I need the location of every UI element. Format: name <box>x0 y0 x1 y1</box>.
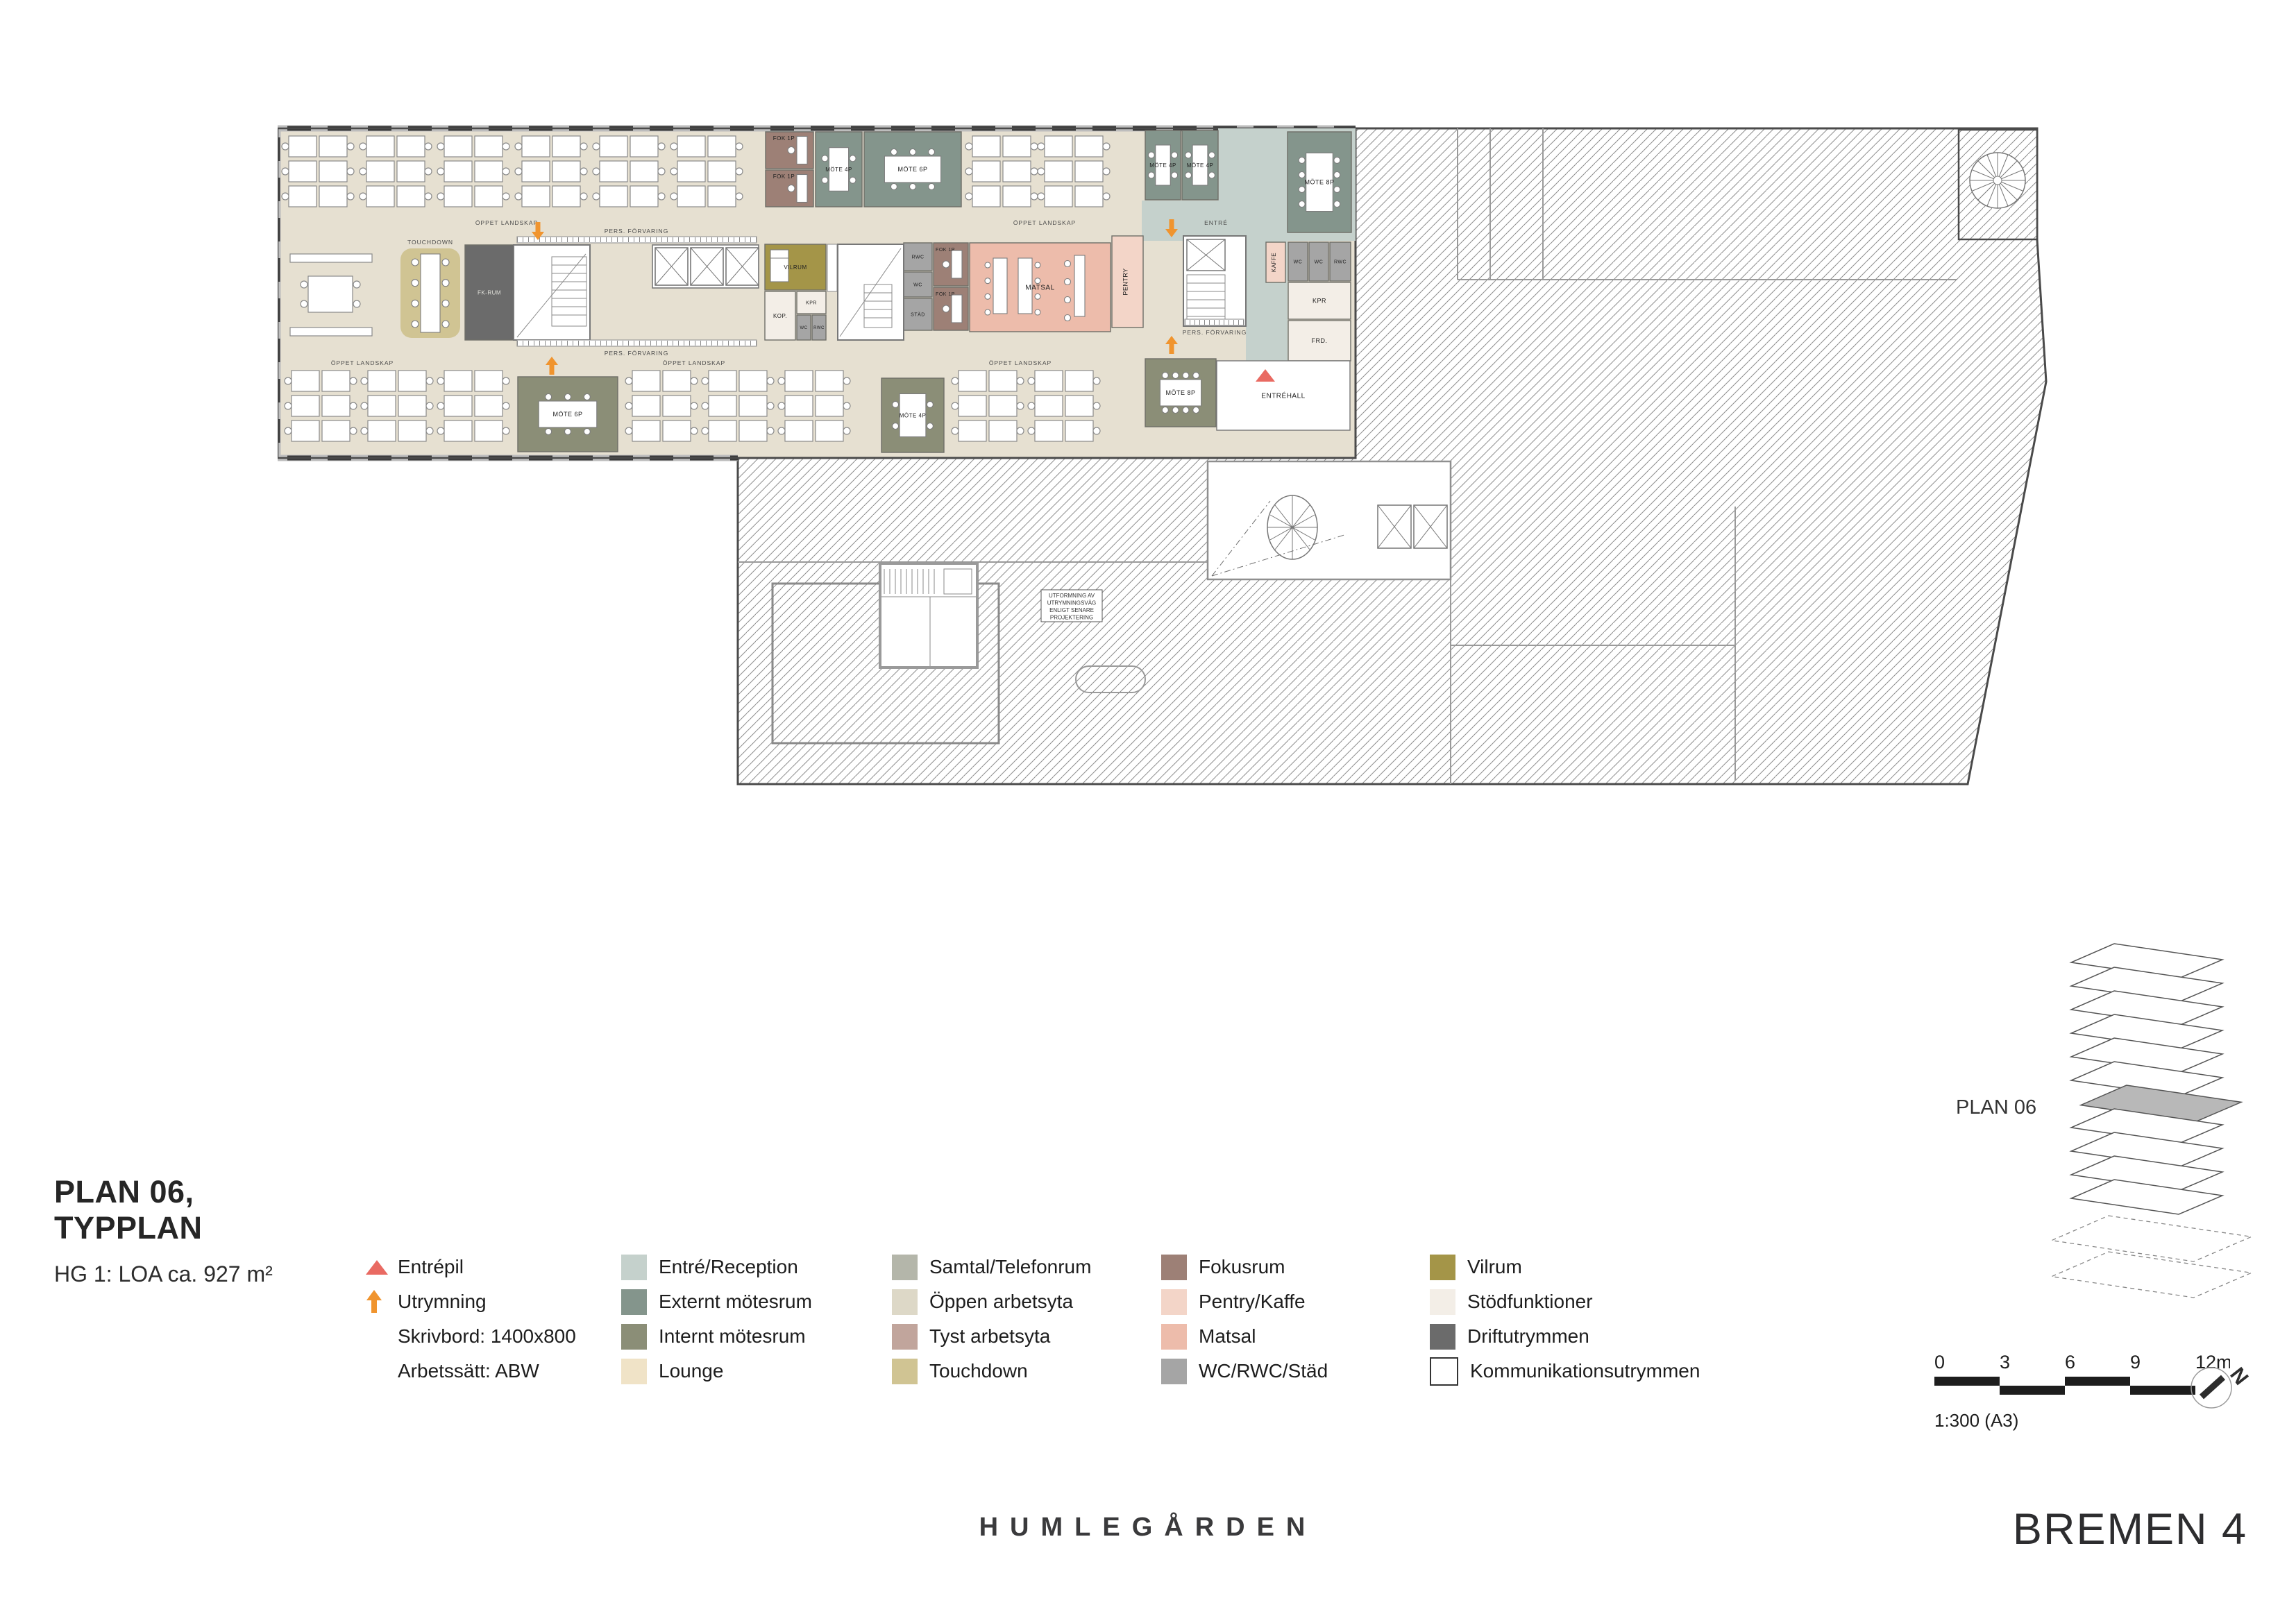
room-rwc: RWC <box>1330 242 1351 281</box>
legend-swatch-internt_motesrum <box>621 1324 647 1350</box>
svg-text:FOK 1P: FOK 1P <box>773 173 795 180</box>
room-matsal: MATSAL <box>970 243 1111 332</box>
axon-floor-label: PLAN 06 <box>1956 1096 2036 1119</box>
area-label-ppet-landskap: ÖPPET LANDSKAP <box>989 359 1052 366</box>
scale-tick: 3 <box>2000 1352 2010 1373</box>
legend-item-matsal: Matsal <box>1161 1319 1328 1354</box>
legend-swatch-matsal <box>1161 1324 1187 1350</box>
room-fok-1p: FOK 1P <box>934 287 968 330</box>
legend-column-4: VilrumStödfunktionerDriftutrymmenKommuni… <box>1430 1250 1700 1388</box>
svg-text:FK-RUM: FK-RUM <box>478 289 501 296</box>
svg-text:VILRUM: VILRUM <box>784 264 807 271</box>
brand-logotype: HUMLEGÅRDEN <box>979 1513 1317 1543</box>
room-m-te-6p: MÖTE 6P <box>518 377 618 452</box>
svg-text:FOK 1P: FOK 1P <box>936 292 955 297</box>
legend-item-kommunikationsutrymmen: Kommunikationsutrymmen <box>1430 1354 1700 1388</box>
svg-text:FRD.: FRD. <box>1312 337 1328 344</box>
legend-item-ppen-arbetsyta: Öppen arbetsyta <box>892 1284 1091 1319</box>
scale-tick: 6 <box>2065 1352 2075 1373</box>
entry-triangle <box>366 1260 398 1275</box>
svg-text:MÖTE 4P: MÖTE 4P <box>1149 162 1176 169</box>
room-touchdown <box>400 248 460 338</box>
room-st-d: STÄD <box>904 298 932 330</box>
legend-label: Entrépil <box>398 1256 464 1278</box>
legend-label: Utrymning <box>398 1291 487 1313</box>
room-kpr: KPR <box>1288 282 1351 319</box>
svg-text:ENTRÉHALL: ENTRÉHALL <box>1261 391 1305 400</box>
legend-swatch-tyst_arbetsyta <box>892 1324 918 1350</box>
axon-stack-diagram <box>2039 938 2268 1327</box>
scale-segment <box>2000 1386 2065 1395</box>
legend-swatch-wc_rwc_stad <box>1161 1359 1187 1384</box>
axon-floor-plate <box>2052 1216 2252 1261</box>
legend-column-2: Samtal/TelefonrumÖppen arbetsytaTyst arb… <box>892 1250 1091 1388</box>
legend-label: Arbetssätt: ABW <box>398 1360 539 1382</box>
svg-text:RWC: RWC <box>813 326 825 330</box>
legend-label: Tyst arbetsyta <box>929 1325 1050 1348</box>
scale-text: 1:300 (A3) <box>1934 1410 2018 1431</box>
legend-item-lounge: Lounge <box>621 1354 812 1388</box>
legend-item-internt-m-tesrum: Internt mötesrum <box>621 1319 812 1354</box>
legend-item-externt-m-tesrum: Externt mötesrum <box>621 1284 812 1319</box>
legend-item-entr-pil: Entrépil <box>366 1250 576 1284</box>
svg-text:UTRYMNINGSVÄG: UTRYMNINGSVÄG <box>1047 600 1097 606</box>
area-label-entr: ENTRÉ <box>1204 219 1228 226</box>
legend-label: Driftutrymmen <box>1467 1325 1589 1348</box>
legend-item-pentry-kaffe: Pentry/Kaffe <box>1161 1284 1328 1319</box>
legend-item-touchdown: Touchdown <box>892 1354 1091 1388</box>
svg-text:ENLIGT SENARE: ENLIGT SENARE <box>1049 607 1094 613</box>
legend-label: Fokusrum <box>1199 1256 1285 1278</box>
area-label-pers-f-rvaring: PERS. FÖRVARING <box>605 228 669 235</box>
room-m-te-6p: MÖTE 6P <box>864 132 961 207</box>
room-kpr: KPR <box>797 291 826 314</box>
room-kop: KOP. <box>765 291 795 340</box>
svg-text:FOK 1P: FOK 1P <box>773 135 795 142</box>
scale-segment <box>2065 1377 2130 1386</box>
svg-text:RWC: RWC <box>911 255 924 260</box>
legend-label: Touchdown <box>929 1360 1028 1382</box>
legend-label: Lounge <box>659 1360 723 1382</box>
area-label-pers-f-rvaring: PERS. FÖRVARING <box>605 350 669 357</box>
title-block: PLAN 06, TYPPLAN HG 1: LOA ca. 927 m² <box>54 1174 273 1287</box>
room-m-te-4p: MÖTE 4P <box>881 378 944 452</box>
room-kaffe: KAFFE <box>1266 242 1285 282</box>
legend-label: Öppen arbetsyta <box>929 1291 1073 1313</box>
legend-label: Vilrum <box>1467 1256 1522 1278</box>
room-wc: WC <box>797 315 811 340</box>
legend-column-1: Entré/ReceptionExternt mötesrumInternt m… <box>621 1250 812 1388</box>
room-fk-rum: FK-RUM <box>465 245 514 340</box>
legend-swatch-lounge <box>621 1359 647 1384</box>
legend-swatch-driftutrymmen <box>1430 1324 1455 1350</box>
legend-swatch-pentry_kaffe <box>1161 1289 1187 1315</box>
room-wc: WC <box>1288 242 1308 281</box>
area-label-ppet-landskap: ÖPPET LANDSKAP <box>1013 219 1076 226</box>
legend-item-samtal-telefonrum: Samtal/Telefonrum <box>892 1250 1091 1284</box>
room-m-te-8p: MÖTE 8P <box>1288 132 1351 232</box>
room-pentry: PENTRY <box>1112 236 1143 328</box>
svg-text:MATSAL: MATSAL <box>1025 284 1054 292</box>
svg-text:MÖTE 8P: MÖTE 8P <box>1165 389 1195 396</box>
annex-spiral-stair <box>1959 130 2037 239</box>
room-wc: WC <box>1309 242 1328 281</box>
svg-text:UTFORMNING AV: UTFORMNING AV <box>1049 593 1095 599</box>
legend-swatch-samtal_telefonrum <box>892 1255 918 1280</box>
area-label-pers-f-rvaring: PERS. FÖRVARING <box>1183 329 1247 336</box>
axon-floor-plate <box>2052 1252 2252 1298</box>
north-letter: N <box>2225 1363 2252 1389</box>
scale-tick: 0 <box>1934 1352 1945 1373</box>
svg-text:WC: WC <box>1294 260 1303 265</box>
area-label-touchdown: TOUCHDOWN <box>407 239 453 246</box>
evacuation-arrow <box>366 1290 398 1314</box>
legend-swatch-stodfunktioner <box>1430 1289 1455 1315</box>
svg-text:KOP.: KOP. <box>773 313 787 319</box>
scale-tick: 9 <box>2130 1352 2141 1373</box>
svg-text:KPR: KPR <box>806 301 817 306</box>
room-rwc: RWC <box>904 243 932 271</box>
svg-text:WC: WC <box>913 283 922 288</box>
room-m-te-4p: MÖTE 4P <box>816 132 862 207</box>
svg-text:MÖTE 6P: MÖTE 6P <box>552 411 582 418</box>
legend-label: Entré/Reception <box>659 1256 798 1278</box>
room-rwc: RWC <box>812 315 826 340</box>
room-wc: WC <box>904 272 932 297</box>
legend-swatch-oppen_arbetsyta <box>892 1289 918 1315</box>
legend-item-vilrum: Vilrum <box>1430 1250 1700 1284</box>
room-m-te-8p: MÖTE 8P <box>1145 359 1216 427</box>
legend-column-3: FokusrumPentry/KaffeMatsalWC/RWC/Städ <box>1161 1250 1328 1388</box>
floor-plan: FOK 1PFOK 1PMÖTE 4PMÖTE 6PMÖTE 4PMÖTE 4P… <box>278 118 2054 812</box>
legend-label: Matsal <box>1199 1325 1256 1348</box>
stair-hall <box>1208 461 1451 579</box>
legend-swatch-vilrum <box>1430 1255 1455 1280</box>
legend-swatch-touchdown <box>892 1359 918 1384</box>
legend-item-utrymning: Utrymning <box>366 1284 576 1319</box>
legend-item-tyst-arbetsyta: Tyst arbetsyta <box>892 1319 1091 1354</box>
svg-text:FOK 1P: FOK 1P <box>936 248 955 253</box>
room-fok-1p: FOK 1P <box>766 170 813 207</box>
legend-label: Kommunikationsutrymmen <box>1470 1360 1700 1382</box>
room-fok-1p: FOK 1P <box>766 132 813 169</box>
svg-text:KAFFE: KAFFE <box>1271 253 1277 272</box>
room-vilrum: VILRUM <box>765 244 826 290</box>
svg-text:STÄD: STÄD <box>911 312 925 318</box>
legend-item-fokusrum: Fokusrum <box>1161 1250 1328 1284</box>
area-label-ppet-landskap: ÖPPET LANDSKAP <box>475 219 538 226</box>
svg-text:KPR: KPR <box>1312 298 1326 305</box>
legend-label: Samtal/Telefonrum <box>929 1256 1091 1278</box>
legend-label: Skrivbord: 1400x800 <box>398 1325 576 1348</box>
legend-swatch-fokusrum <box>1161 1255 1187 1280</box>
room-m-te-4p: MÖTE 4P <box>1145 130 1181 200</box>
legend-label: WC/RWC/Städ <box>1199 1360 1328 1382</box>
svg-text:PENTRY: PENTRY <box>1122 268 1129 295</box>
svg-text:MÖTE 4P: MÖTE 4P <box>825 167 852 173</box>
legend-item-st-dfunktioner: Stödfunktioner <box>1430 1284 1700 1319</box>
area-label-ppet-landskap: ÖPPET LANDSKAP <box>663 359 725 366</box>
room-entr-hall: ENTRÉHALL <box>1217 361 1350 430</box>
svg-text:WC: WC <box>1315 260 1324 265</box>
svg-text:PROJEKTERING: PROJEKTERING <box>1050 615 1093 621</box>
plan-title-line2: TYPPLAN <box>54 1210 273 1246</box>
room-fok-1p: FOK 1P <box>934 243 968 286</box>
room-frd: FRD. <box>1288 321 1351 361</box>
legend-label: Stödfunktioner <box>1467 1291 1593 1313</box>
svg-text:RWC: RWC <box>1334 260 1347 265</box>
svg-text:MÖTE 4P: MÖTE 4P <box>1187 162 1214 169</box>
evacuation-note: UTFORMNING AVUTRYMNINGSVÄGENLIGT SENAREP… <box>1041 590 1102 622</box>
svg-text:MÖTE 8P: MÖTE 8P <box>1304 179 1334 186</box>
legend-label: Pentry/Kaffe <box>1199 1291 1306 1313</box>
scale-segment <box>1934 1377 2000 1386</box>
room-m-te-4p: MÖTE 4P <box>1182 130 1218 200</box>
svg-text:WC: WC <box>800 326 808 330</box>
legend-item-entr-reception: Entré/Reception <box>621 1250 812 1284</box>
legend-swatch-externt_motesrum <box>621 1289 647 1315</box>
drawing-sheet: FOK 1PFOK 1PMÖTE 4PMÖTE 6PMÖTE 4PMÖTE 4P… <box>0 0 2296 1623</box>
legend-label: Internt mötesrum <box>659 1325 806 1348</box>
legend-item-driftutrymmen: Driftutrymmen <box>1430 1319 1700 1354</box>
legend-item-skrivbord-1400x800: Skrivbord: 1400x800 <box>366 1319 576 1354</box>
legend-swatch-entre_reception <box>621 1255 647 1280</box>
project-name: BREMEN 4 <box>2013 1504 2247 1554</box>
north-arrow: N <box>2179 1349 2270 1425</box>
svg-text:MÖTE 4P: MÖTE 4P <box>900 412 927 418</box>
plan-title-line1: PLAN 06, <box>54 1174 273 1210</box>
legend-markers-column: EntrépilUtrymningSkrivbord: 1400x800Arbe… <box>366 1250 576 1388</box>
svg-text:MÖTE 6P: MÖTE 6P <box>897 166 927 173</box>
legend-item-arbetss-tt-abw: Arbetssätt: ABW <box>366 1354 576 1388</box>
area-label-ppet-landskap: ÖPPET LANDSKAP <box>331 359 394 366</box>
legend-item-wc-rwc-st-d: WC/RWC/Städ <box>1161 1354 1328 1388</box>
axon-floor-plate <box>2071 1180 2222 1214</box>
legend-label: Externt mötesrum <box>659 1291 812 1313</box>
legend-swatch-kommunikationsutrymmen <box>1430 1357 1458 1386</box>
area-note: HG 1: LOA ca. 927 m² <box>54 1261 273 1287</box>
